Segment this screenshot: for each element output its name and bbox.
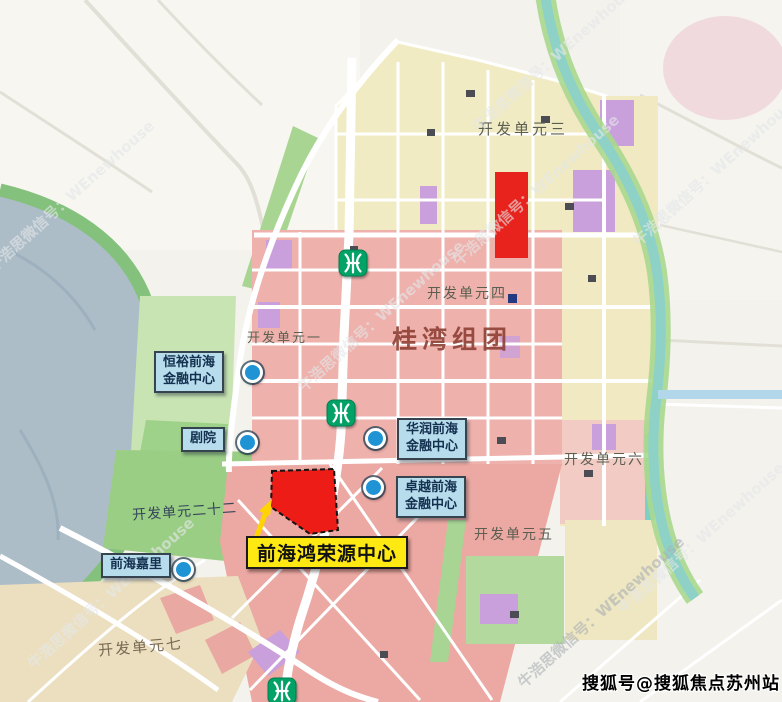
callout-line: 金融中心: [406, 439, 458, 456]
callout-line: 金融中心: [405, 497, 457, 514]
zone-label-unit1: 开发单元一: [247, 327, 322, 346]
marker-dot-theater: [237, 432, 258, 453]
district-title-guiwan: 桂湾组团: [392, 320, 512, 356]
callout-theater: 剧院: [181, 427, 225, 452]
zone-label-unit4: 开发单元四: [427, 283, 507, 303]
metro-station-icon: [338, 249, 368, 277]
callout-line: 前海嘉里: [110, 557, 162, 574]
red-landmark-block: [495, 172, 528, 258]
callout-line: 华润前海: [406, 422, 458, 439]
callout-line: 卓越前海: [405, 480, 457, 497]
callout-line: 金融中心: [163, 372, 215, 389]
callout-hengyu-qianhai-financial-center: 恒裕前海 金融中心: [154, 351, 224, 393]
callout-qianhai-kerry: 前海嘉里: [101, 553, 171, 578]
basemap: [0, 0, 782, 702]
marker-dot-hengyu: [242, 362, 263, 383]
metro-station-icon: [267, 677, 297, 702]
marker-dot-kerry: [173, 559, 194, 580]
planning-map-canvas: 开发单元三 开发单元四 桂湾组团 开发单元一 开发单元二十二 开发单元五 开发单…: [0, 0, 782, 702]
civic-block-icon: [508, 294, 517, 303]
callout-line: 恒裕前海: [163, 355, 215, 372]
watermark-sohu-account: 搜狐号@搜狐焦点苏州站: [582, 669, 780, 694]
callout-zhuoyue-qianhai-financial-center: 卓越前海 金融中心: [396, 476, 466, 518]
marker-dot-huarun: [365, 428, 386, 449]
zone-label-unit3: 开发单元三: [478, 118, 568, 139]
marker-dot-zhuoyue: [363, 477, 384, 498]
channel: [658, 390, 782, 399]
zone-label-unit5: 开发单元五: [474, 524, 554, 544]
callout-huarun-qianhai-financial-center: 华润前海 金融中心: [397, 418, 467, 460]
highlight-label-qianhai-hongrongyuan-center: 前海鸿荣源中心: [246, 536, 408, 569]
callout-line: 剧院: [190, 431, 216, 448]
zone-label-unit6: 开发单元六: [564, 449, 644, 469]
metro-station-icon: [326, 399, 356, 427]
